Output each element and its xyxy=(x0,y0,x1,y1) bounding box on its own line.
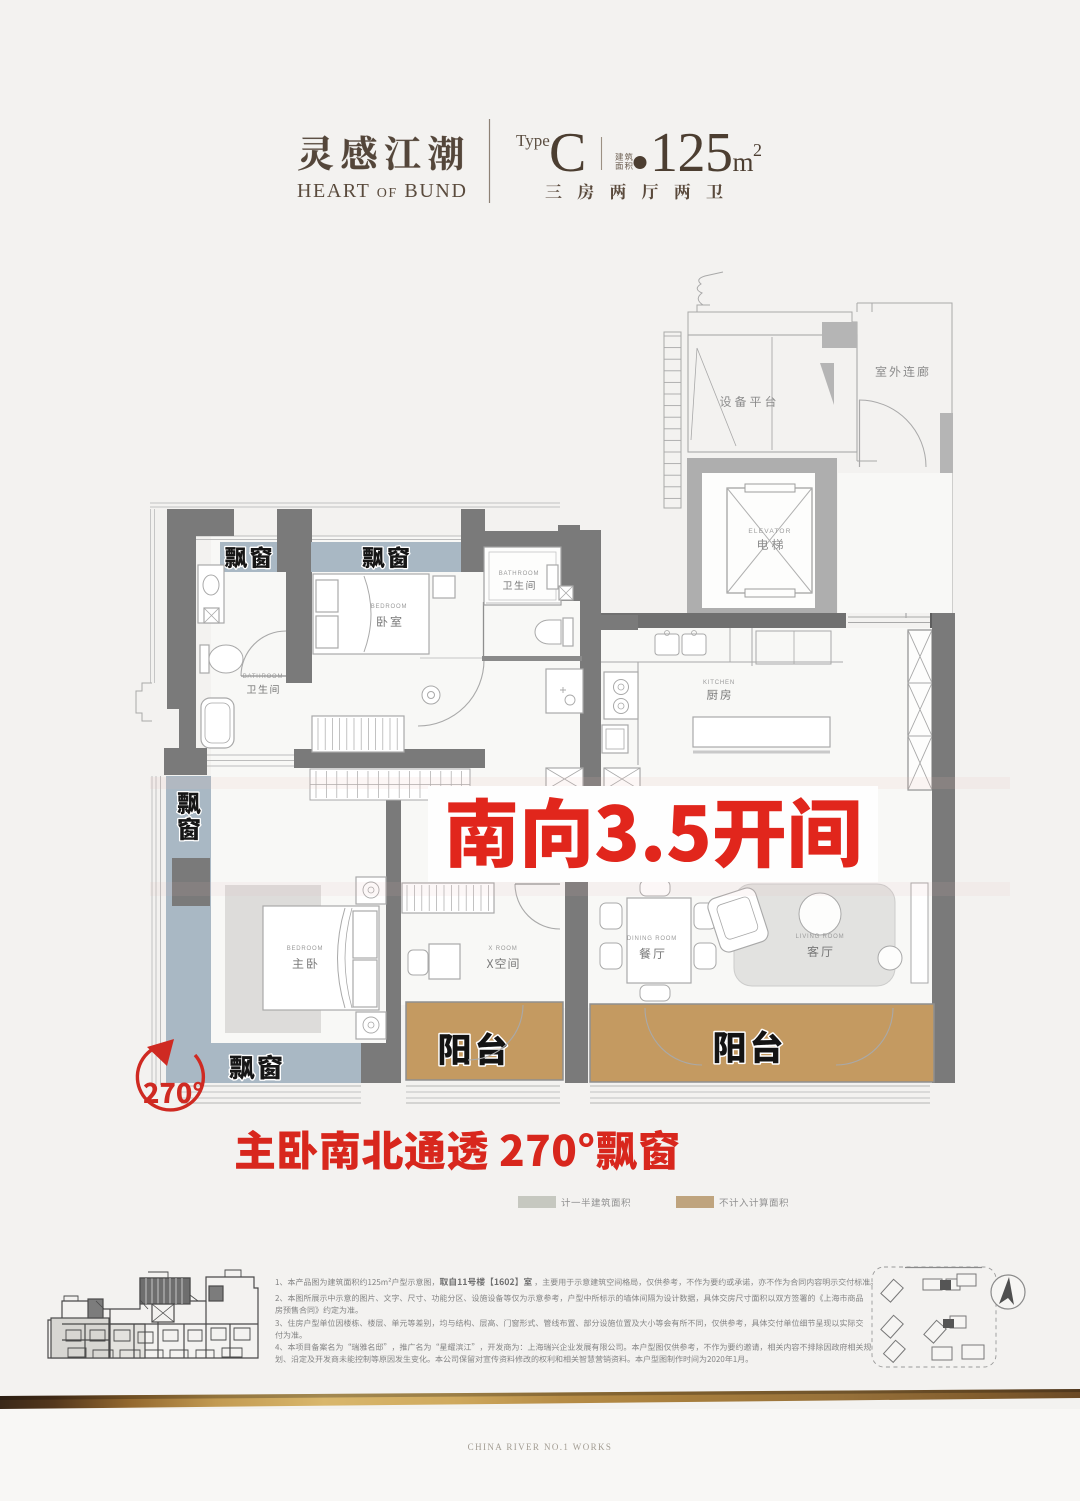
svg-text:BEDROOM: BEDROOM xyxy=(287,946,324,952)
svg-text:ELEVATOR: ELEVATOR xyxy=(748,528,791,535)
svg-text:DINING ROOM: DINING ROOM xyxy=(627,936,677,942)
svg-text:BEDROOM: BEDROOM xyxy=(371,604,408,610)
svg-text:KITCHEN: KITCHEN xyxy=(703,680,735,686)
svg-text:BATHROOM: BATHROOM xyxy=(499,571,540,577)
svg-text:Type: Type xyxy=(516,131,550,150)
svg-text:X ROOM: X ROOM xyxy=(488,946,517,952)
svg-text:CHINA RIVER NO.1 WORKS: CHINA RIVER NO.1 WORKS xyxy=(468,1442,613,1452)
svg-text:BATHROOM: BATHROOM xyxy=(243,674,284,680)
svg-text:C: C xyxy=(549,122,586,184)
svg-text:LIVING ROOM: LIVING ROOM xyxy=(796,934,845,940)
